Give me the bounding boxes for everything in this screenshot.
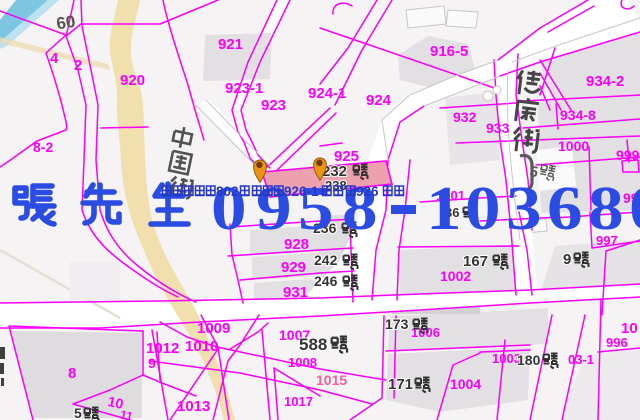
svg-text:11: 11	[119, 407, 135, 420]
svg-text:929: 929	[281, 259, 306, 276]
svg-text:9: 9	[148, 355, 156, 371]
svg-text:60: 60	[55, 12, 76, 33]
svg-text:999: 999	[616, 147, 640, 163]
svg-text:1009: 1009	[197, 320, 230, 337]
svg-text:6: 6	[547, 173, 583, 243]
svg-text:1017: 1017	[284, 394, 313, 409]
svg-text:0: 0	[465, 173, 501, 243]
svg-text:926: 926	[356, 184, 379, 199]
svg-text:588: 588	[299, 335, 327, 354]
svg-text:167: 167	[463, 253, 488, 270]
svg-text:926-1: 926-1	[284, 184, 319, 199]
svg-text:1002: 1002	[440, 268, 471, 284]
svg-text:916-5: 916-5	[430, 43, 468, 60]
svg-text:934-8: 934-8	[560, 107, 596, 123]
svg-text:924: 924	[366, 92, 392, 109]
svg-text:1015: 1015	[316, 372, 347, 388]
svg-text:8: 8	[68, 365, 76, 382]
svg-text:173: 173	[385, 316, 409, 332]
svg-text:171: 171	[388, 376, 413, 393]
svg-text:932: 932	[453, 109, 477, 125]
svg-text:5: 5	[74, 405, 82, 420]
svg-text:996: 996	[606, 335, 628, 350]
svg-text:8-2: 8-2	[33, 139, 53, 155]
svg-text:920: 920	[120, 72, 145, 89]
svg-text:1006: 1006	[411, 325, 440, 340]
svg-text:8: 8	[588, 173, 624, 243]
svg-text:933: 933	[486, 120, 510, 136]
svg-text:10: 10	[621, 320, 638, 337]
svg-text:1012: 1012	[146, 340, 179, 357]
svg-text:180: 180	[517, 352, 541, 368]
svg-text:9: 9	[563, 251, 571, 268]
svg-text:931: 931	[283, 284, 308, 301]
svg-text:1008: 1008	[288, 355, 317, 370]
svg-text:0: 0	[629, 173, 640, 243]
svg-text:2: 2	[74, 57, 82, 74]
svg-text:802: 802	[216, 184, 239, 199]
svg-text:3: 3	[506, 173, 542, 243]
svg-text:1000: 1000	[558, 138, 589, 154]
svg-text:923: 923	[261, 97, 286, 114]
svg-text:1: 1	[426, 173, 462, 243]
svg-text:246: 246	[314, 273, 338, 289]
svg-text:924-1: 924-1	[308, 85, 346, 102]
svg-text:923-1: 923-1	[225, 80, 263, 97]
svg-text:242: 242	[314, 252, 338, 268]
svg-text:1013: 1013	[177, 398, 210, 415]
svg-text:921: 921	[218, 36, 243, 53]
svg-text:1004: 1004	[450, 376, 481, 392]
svg-text:4: 4	[50, 50, 59, 67]
svg-text:1010: 1010	[185, 338, 218, 355]
svg-text:03-1: 03-1	[568, 352, 594, 367]
svg-text:934-2: 934-2	[586, 73, 624, 90]
